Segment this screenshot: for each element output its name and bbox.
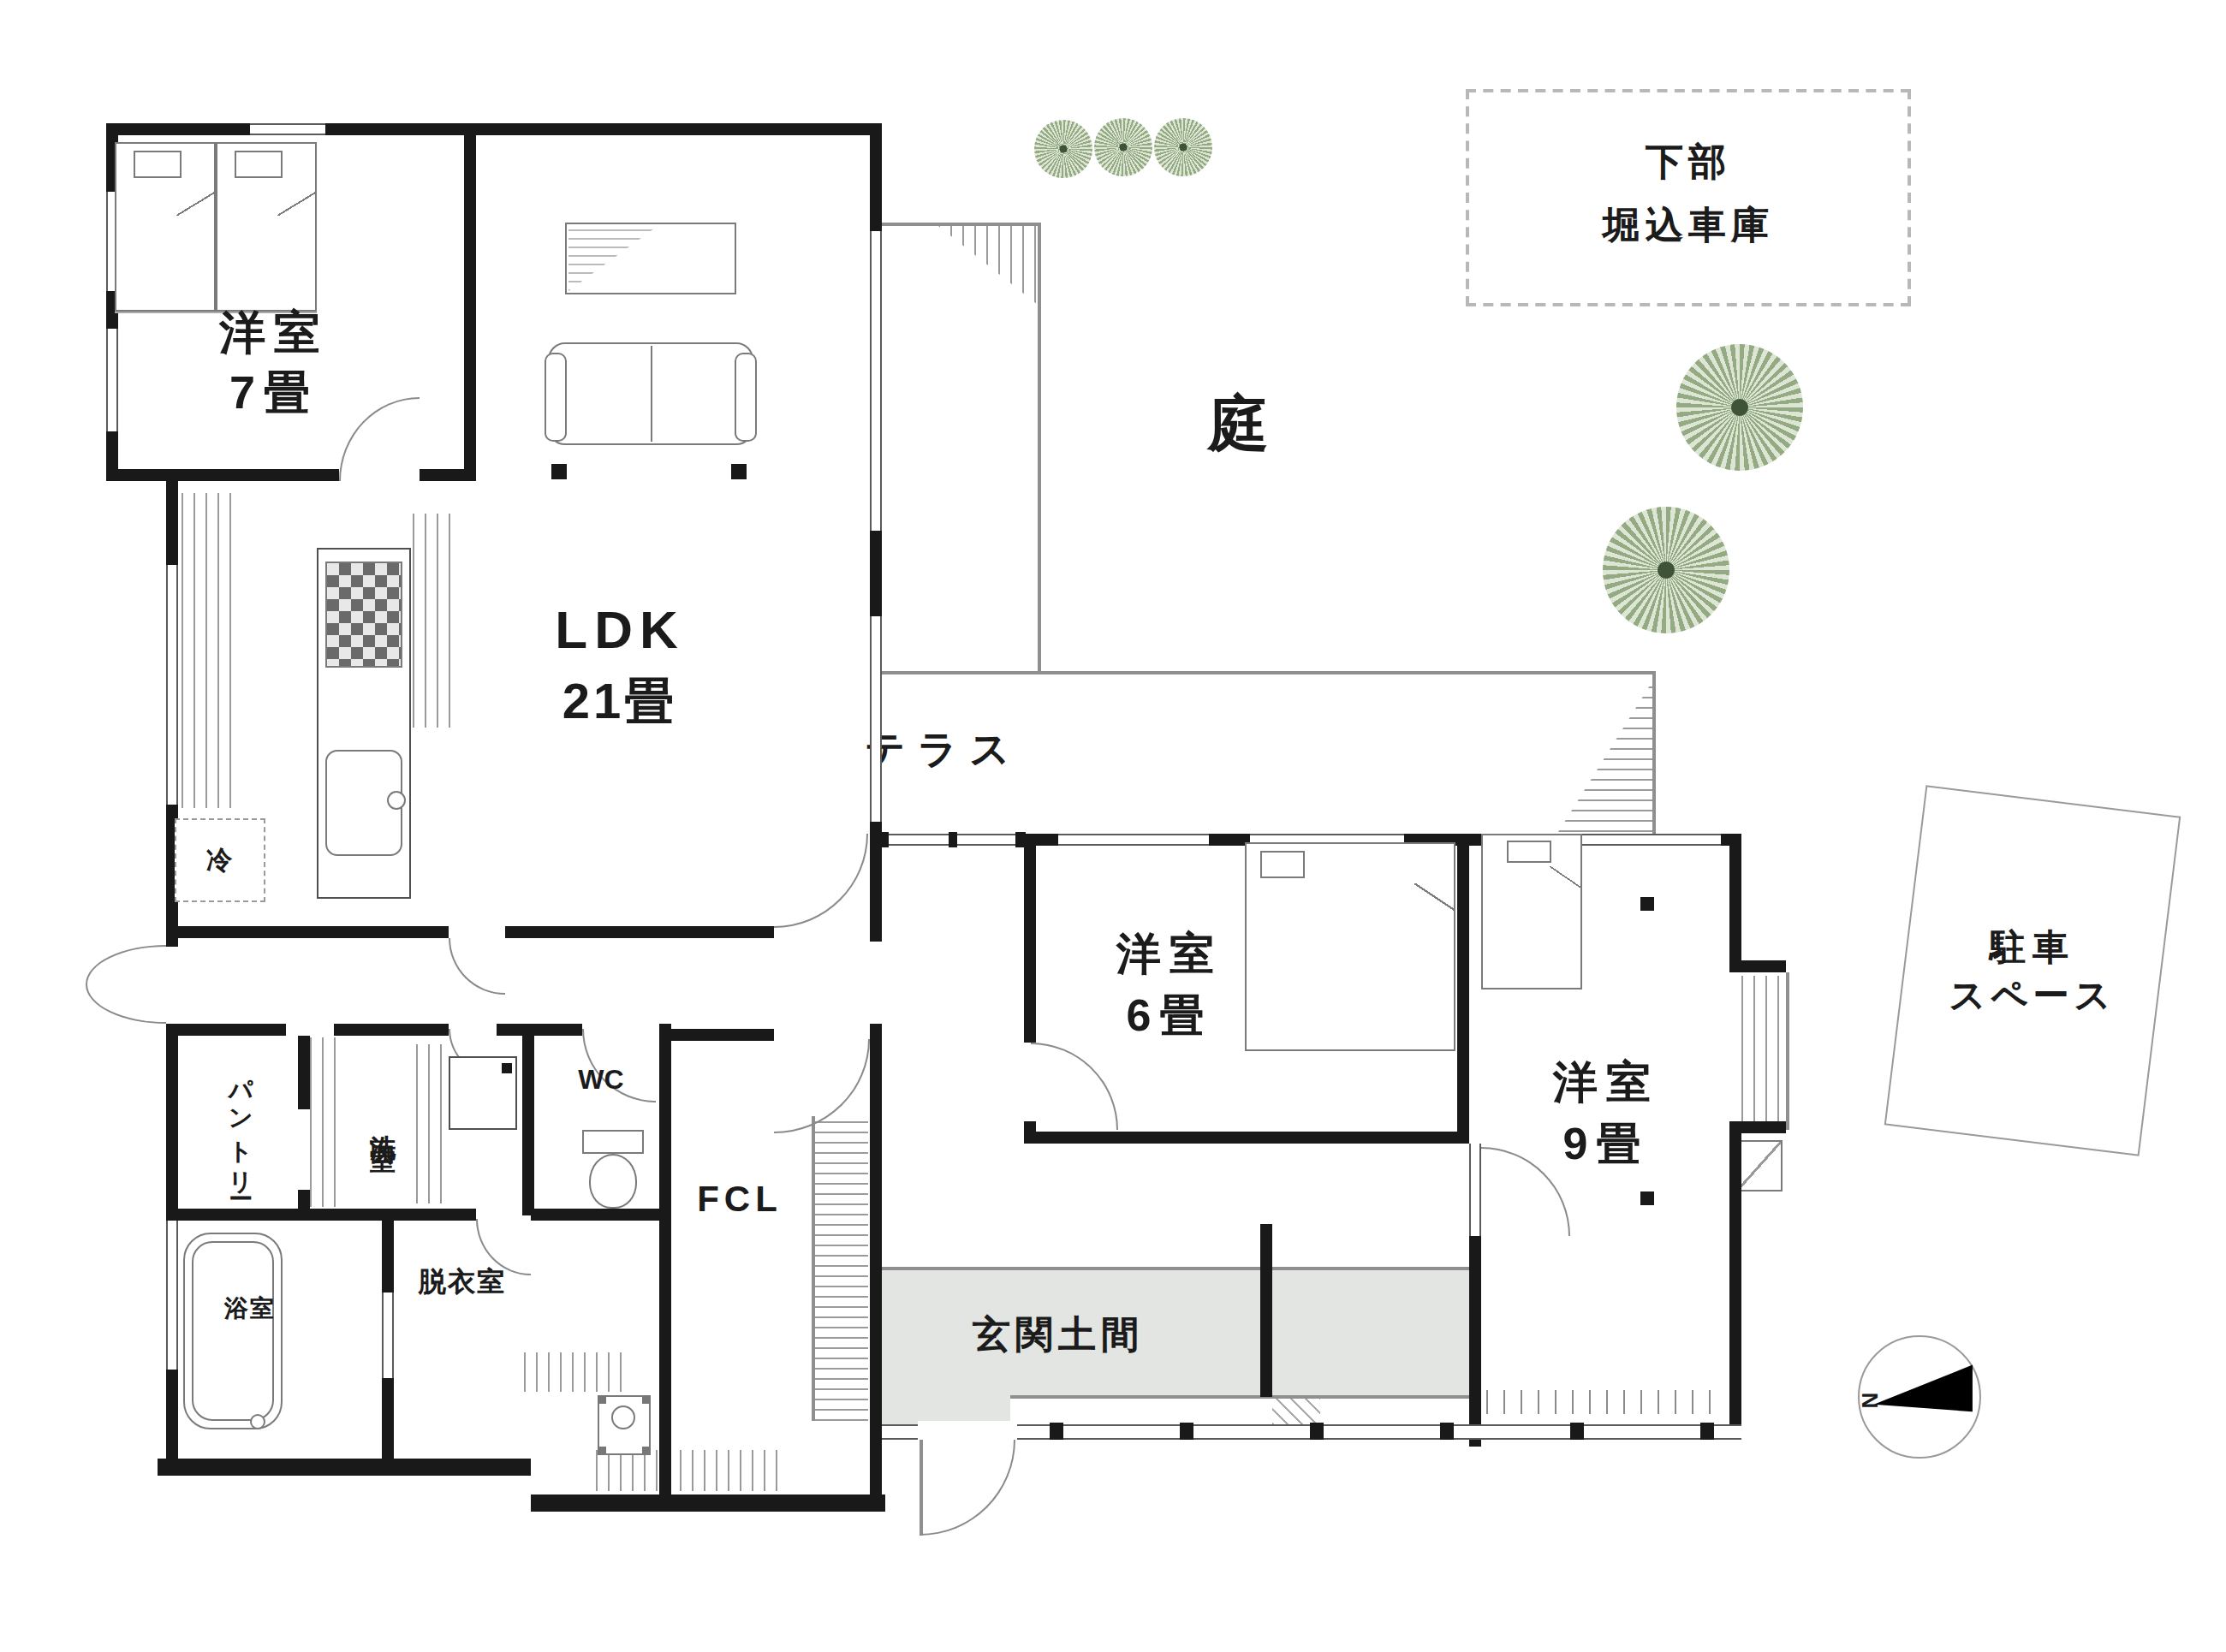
basin-corner (642, 1447, 651, 1455)
shower-drain (250, 1414, 265, 1429)
fcl-label: FCL (697, 1180, 783, 1216)
wall (1209, 834, 1250, 846)
wall (870, 531, 882, 616)
wall (382, 1221, 394, 1292)
wall (1729, 846, 1741, 972)
wall (166, 481, 178, 565)
bath-label: 浴室 (224, 1296, 276, 1320)
window (166, 1219, 178, 1370)
wall (325, 123, 476, 135)
bedroom6-label-line1: 洋室 (1116, 931, 1223, 976)
parking-label-line2: スペース (1949, 977, 2116, 1013)
bedroom7-label-line2: 7畳 (229, 371, 318, 417)
bed-fold (277, 192, 317, 216)
corridor-door-arc (449, 938, 505, 995)
engawa-step (1736, 1140, 1783, 1191)
ldk-label-line2: 21畳 (562, 677, 678, 727)
datsui-basin-bowl (611, 1405, 635, 1429)
faucet (387, 791, 406, 810)
ldk-hall-door-arc (774, 834, 868, 928)
garage-label-line1: 下部 (1646, 144, 1731, 181)
bed-pillow (235, 151, 283, 178)
wall (382, 1378, 394, 1459)
wall (870, 1024, 882, 1512)
genkan-step-line-bottom (1010, 1395, 1471, 1398)
kitchen-side-hatch (413, 514, 454, 728)
bed-pillow (134, 151, 182, 178)
parking-area (1884, 785, 2181, 1156)
wall (166, 1024, 178, 1219)
datsui-counter-hatch (524, 1352, 623, 1392)
wall (1729, 1121, 1786, 1133)
bathtub-inner (192, 1241, 274, 1421)
wall (158, 1459, 531, 1476)
terrace-edge-right-upper (1038, 223, 1041, 673)
window (106, 329, 118, 431)
sofa-arm (735, 353, 757, 442)
post (731, 464, 747, 479)
basin-corner (642, 1395, 651, 1404)
genkan-step-line-top (882, 1267, 1471, 1269)
toilet-bowl (589, 1154, 637, 1209)
terrace-label: テラス (865, 730, 1021, 770)
garage-label-line2: 堀込車庫 (1603, 207, 1774, 245)
tree-icon (1094, 118, 1152, 176)
wall (497, 1024, 582, 1036)
wall (106, 123, 250, 135)
wall (166, 1024, 286, 1036)
tree-icon (1034, 120, 1092, 178)
sofa-split (651, 346, 652, 442)
wall (1024, 834, 1058, 846)
washer-faucet (502, 1063, 512, 1073)
bed-pillow (1507, 841, 1551, 863)
west-double-door-arc-bottom (86, 984, 166, 1024)
bedroom7-door-arc (339, 397, 420, 481)
sofa-arm (545, 353, 567, 442)
post (1570, 1423, 1584, 1440)
compass-n-label: N (1859, 1393, 1881, 1409)
garden-label: 庭 (1207, 394, 1269, 455)
fcl-hanger-hatch (815, 1116, 868, 1421)
garage-box (1466, 89, 1911, 306)
wall (659, 1024, 671, 1512)
window (1058, 834, 1209, 846)
bed-pillow (1260, 851, 1305, 878)
bedroom9-south-hatch (1486, 1390, 1726, 1414)
wall (166, 1370, 178, 1467)
wall (166, 926, 449, 938)
bed-fold (1550, 866, 1582, 888)
bedroom9-label-line2: 9畳 (1563, 1121, 1650, 1166)
bedroom7-label-line1: 洋室 (219, 311, 329, 357)
wall (298, 1036, 310, 1109)
wall (505, 926, 774, 938)
fridge-label: 冷 (206, 847, 232, 872)
wall (1729, 1133, 1741, 1440)
genkan-label: 玄関土間 (973, 1316, 1144, 1354)
post (949, 832, 957, 847)
doorway-frame (1469, 1144, 1481, 1236)
bedroom6-door-arc (1031, 1043, 1118, 1130)
terrace-edge-bottom (882, 671, 1656, 674)
wall (334, 1024, 449, 1036)
window (166, 565, 178, 805)
tree-icon (1676, 344, 1803, 471)
wall (531, 1495, 885, 1512)
wall (1260, 1224, 1272, 1397)
west-double-door-arc-top (86, 945, 166, 984)
wall (671, 1029, 774, 1041)
post (1050, 1423, 1063, 1440)
bed-fold (1414, 883, 1455, 911)
bedroom9-label-line1: 洋室 (1553, 1060, 1659, 1104)
wall (870, 135, 882, 231)
bedroom6-label-line2: 6畳 (1127, 993, 1213, 1037)
pantry-shelf-hatch (310, 1037, 336, 1207)
pantry-label: パントリー (229, 1061, 253, 1187)
fcl-hanger-rod (812, 1116, 814, 1421)
tree-icon (1154, 118, 1212, 176)
sliding-door (382, 1292, 394, 1378)
basin-corner (598, 1395, 606, 1404)
entrance-door-arc (920, 1440, 1015, 1536)
wall (106, 469, 339, 481)
parking-label-line1: 駐車 (1990, 929, 2075, 965)
floor-plan: 下部 堀込車庫 庭 駐車 スペース N テラス 玄関土間 (0, 0, 2226, 1652)
wall (1729, 960, 1786, 972)
post (1310, 1423, 1324, 1440)
post (1640, 1191, 1654, 1205)
engawa-hatch (1741, 976, 1786, 1126)
post (1180, 1423, 1193, 1440)
window (870, 616, 882, 822)
wall (1024, 846, 1036, 1043)
terrace-edge-top (882, 223, 1041, 226)
genkan-step-board (1272, 1399, 1320, 1424)
engawa-edge (1786, 972, 1789, 1130)
post (1440, 1423, 1454, 1440)
post (1640, 897, 1654, 911)
fcl-south-hatch (596, 1450, 788, 1491)
wall (1024, 1132, 1469, 1144)
wall (476, 123, 882, 135)
basin-corner (598, 1447, 606, 1455)
wall (522, 1036, 534, 1215)
wall (166, 1209, 476, 1221)
wall (1457, 846, 1469, 1137)
post (878, 832, 889, 847)
tree-icon (1603, 507, 1729, 633)
terrace-edge-right-lower (1652, 671, 1656, 835)
window (870, 231, 882, 531)
toilet-tank (582, 1130, 644, 1154)
datsui-label: 脱衣室 (419, 1269, 506, 1296)
bedroom9-door-arc (1481, 1147, 1570, 1236)
post (1700, 1423, 1714, 1440)
west-deck-hatch (182, 493, 236, 808)
wall (420, 469, 476, 481)
wc-label: WC (578, 1067, 623, 1094)
ldk-label-line1: LDK (555, 603, 684, 657)
terrace-hatch-right (1558, 681, 1652, 832)
post (551, 464, 567, 479)
wall (531, 1209, 671, 1221)
stove (325, 562, 402, 668)
wall (464, 135, 476, 481)
wall (1721, 834, 1741, 846)
senmen-shelf-hatch (416, 1044, 447, 1203)
terrace-hatch-top (938, 226, 1038, 305)
genkan-floor (882, 1267, 1471, 1397)
senmen-label: 洗面室 (371, 1114, 396, 1129)
wall (1469, 1236, 1481, 1447)
bed-fold (176, 192, 216, 216)
window (250, 123, 325, 135)
